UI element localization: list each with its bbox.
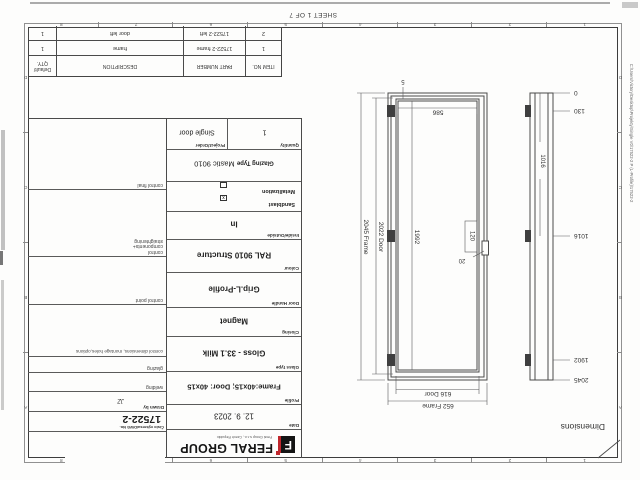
scan-edge-artifact bbox=[622, 2, 638, 8]
scan-edge-artifact bbox=[0, 251, 3, 265]
drawing-sheet-rotated-180: Dimensions 0 130 1016 1902 2045 1016 bbox=[0, 0, 640, 480]
scan-edge-artifact bbox=[1, 280, 4, 410]
corner-mark bbox=[598, 440, 620, 458]
dim-2045-frame: 2045 Frame bbox=[362, 219, 369, 254]
whiteout-patch bbox=[65, 432, 165, 467]
dim-616-door: 616 Door bbox=[424, 390, 452, 397]
ladder-0: 0 bbox=[574, 89, 578, 96]
side-bar-dim-1016: 1016 bbox=[539, 154, 545, 168]
dim-652-frame: 652 Frame bbox=[422, 402, 454, 409]
dim-1992: 1992 bbox=[413, 230, 420, 245]
ladder-1016: 1016 bbox=[574, 232, 589, 239]
dim-120-lock: 120 bbox=[469, 231, 475, 242]
dim-2022-door: 2022 Door bbox=[377, 222, 384, 253]
scan-edge-artifact bbox=[30, 3, 610, 5]
door-drawing: Dimensions 0 130 1016 1902 2045 1016 bbox=[0, 0, 640, 480]
scanned-drawing-page: Dimensions 0 130 1016 1902 2045 1016 bbox=[0, 0, 640, 480]
dim-20-lock-offset: 20 bbox=[458, 257, 465, 263]
dim-5-gap: 5 bbox=[401, 78, 405, 84]
front-view-dims bbox=[357, 87, 487, 405]
side-view bbox=[525, 93, 553, 380]
ladder-1902: 1902 bbox=[574, 356, 589, 363]
ladder-130: 130 bbox=[574, 107, 585, 114]
side-view-ladder bbox=[540, 93, 570, 380]
dim-586: 586 bbox=[432, 109, 443, 116]
ladder-2045: 2045 bbox=[574, 376, 589, 383]
scan-edge-artifact bbox=[1, 130, 5, 250]
view-label: Dimensions bbox=[561, 422, 605, 432]
